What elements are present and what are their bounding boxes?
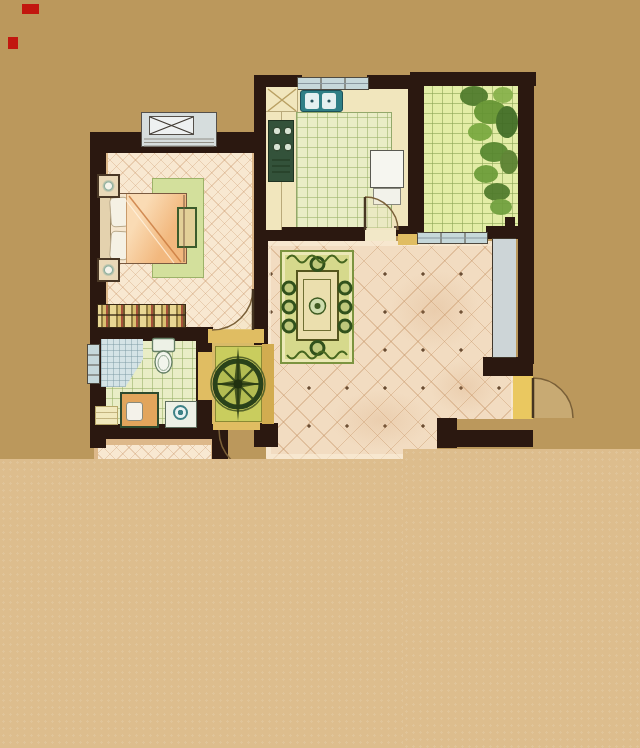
corner-cabinet <box>266 87 298 112</box>
bay-niche <box>492 238 516 358</box>
sink-basin <box>322 93 336 109</box>
bottom-band-right <box>403 449 640 748</box>
planter-pot <box>505 217 515 227</box>
wall-segment <box>437 430 533 447</box>
wall-segment <box>483 357 533 376</box>
bath-mat <box>95 406 118 425</box>
kitchen-side-counter <box>373 188 401 205</box>
foot-bench <box>177 207 197 248</box>
balcony-floor <box>422 84 522 234</box>
dining-table-inner <box>303 279 331 331</box>
dining-balcony-window <box>417 232 488 244</box>
nightstand <box>97 258 120 282</box>
wall-segment <box>518 72 534 364</box>
bottom-band-left <box>0 459 403 748</box>
wall-segment <box>367 75 412 89</box>
red-mark-2 <box>8 37 18 49</box>
wall-trim <box>398 234 418 245</box>
floor-plan-image <box>0 0 640 748</box>
bathroom-window <box>87 344 100 384</box>
bedroom-door-opening <box>208 329 264 343</box>
nightstand <box>97 174 120 198</box>
fridge <box>370 150 404 188</box>
sink-basin <box>305 93 319 109</box>
vanity-sink <box>126 402 143 421</box>
hallway-partition <box>262 344 274 424</box>
compass-rug <box>215 346 262 422</box>
entry-door-opening <box>513 376 533 419</box>
red-mark-1 <box>22 4 39 14</box>
wall-segment <box>408 86 424 235</box>
bathroom-door-opening <box>198 352 212 400</box>
striped-dresser <box>97 304 186 328</box>
wall-segment <box>92 327 213 341</box>
kitchen-window <box>297 77 369 90</box>
bedroom-window-pane <box>149 116 194 135</box>
washer-drum <box>173 405 188 420</box>
kitchen-door-opening <box>365 228 396 241</box>
stove <box>268 120 294 182</box>
